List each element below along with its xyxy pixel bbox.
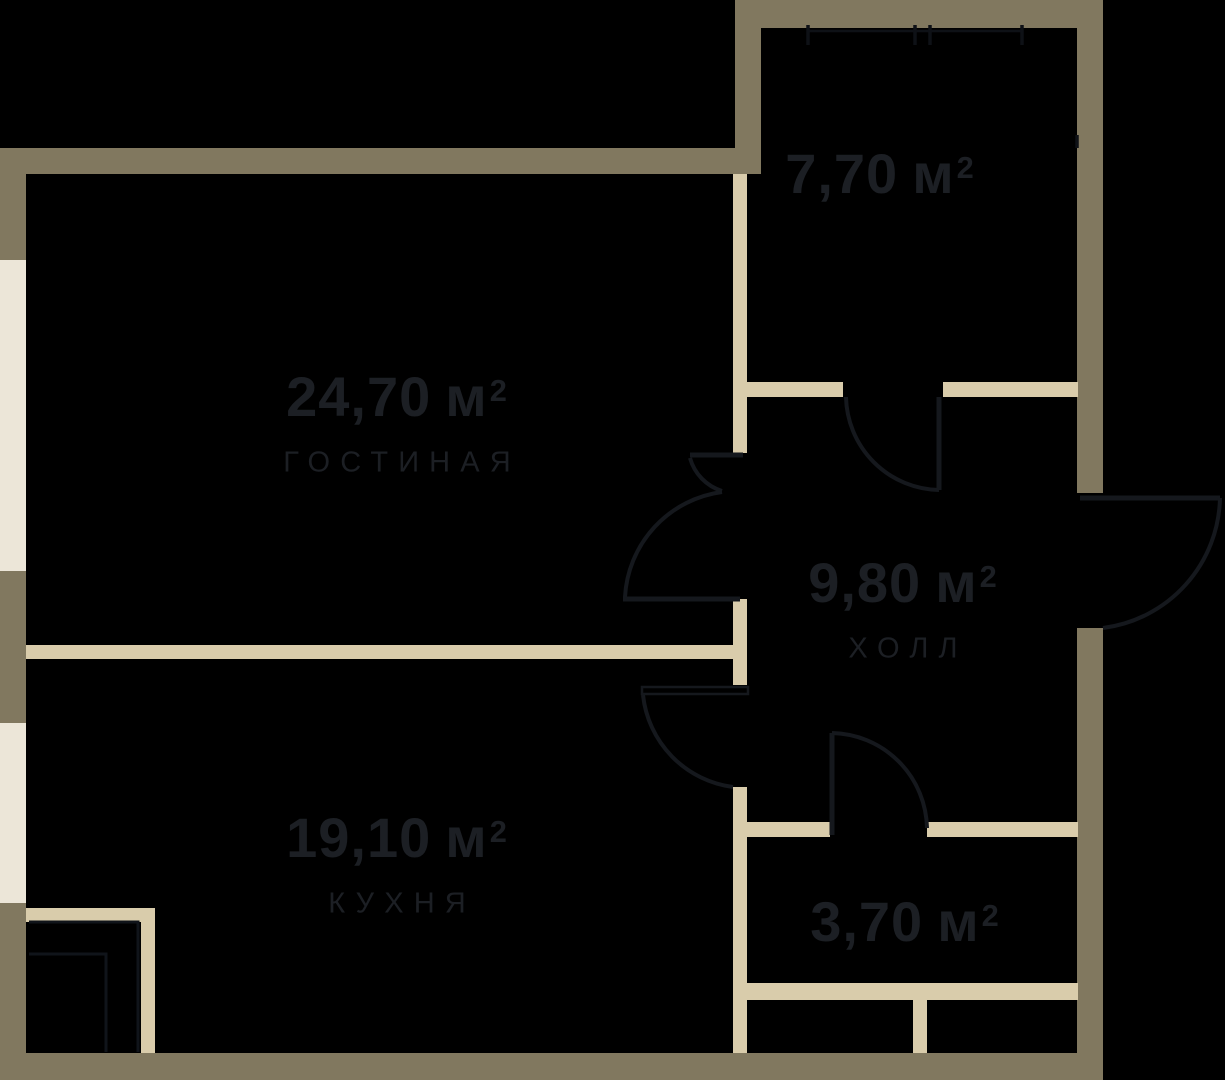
kitchen-area-value: 19,10 <box>286 806 431 869</box>
hall-area-value: 9,80 <box>808 551 921 614</box>
kitchen-room-name: кухня <box>318 890 476 919</box>
shaft-outline-inner <box>29 954 106 1052</box>
room770-area-sup: 2 <box>957 150 975 185</box>
room370-area-sup: 2 <box>982 898 1000 933</box>
room370-area-label: 3,70м2 <box>810 894 1000 950</box>
room770-area-value: 7,70 <box>785 142 898 205</box>
kitchen-area-sup: 2 <box>490 814 508 849</box>
living-area-value: 24,70 <box>286 365 431 428</box>
kitchen-door-arc <box>643 695 733 787</box>
hall-area-sup: 2 <box>980 559 998 594</box>
room370-area-unit: м <box>937 890 979 953</box>
room770-area-label: 7,70м2 <box>785 146 975 202</box>
floor-plan: 24,70м2 гостиная 19,10м2 кухня 9,80м2 хо… <box>0 0 1225 1080</box>
room370-door-arc <box>832 733 927 828</box>
entrance-door-arc <box>1103 498 1220 628</box>
living-door-big-arc <box>625 492 722 597</box>
living-area-label: 24,70м2 <box>286 369 508 425</box>
kitchen-door-leaf <box>642 687 748 694</box>
room770-area-unit: м <box>912 142 954 205</box>
hall-area-label: 9,80м2 <box>808 555 998 611</box>
shaft-outline-outer <box>29 922 138 1052</box>
linework-overlay <box>0 0 1225 1080</box>
kitchen-area-label: 19,10м2 <box>286 810 508 866</box>
hall-room-name: холл <box>838 635 967 664</box>
room370-area-value: 3,70 <box>810 890 923 953</box>
hall-room770-door-arc <box>846 397 939 490</box>
living-area-unit: м <box>445 365 487 428</box>
living-area-sup: 2 <box>490 373 508 408</box>
kitchen-area-unit: м <box>445 806 487 869</box>
living-room-name: гостиная <box>273 449 521 478</box>
living-door-small-arc <box>690 458 722 491</box>
hall-area-unit: м <box>935 551 977 614</box>
